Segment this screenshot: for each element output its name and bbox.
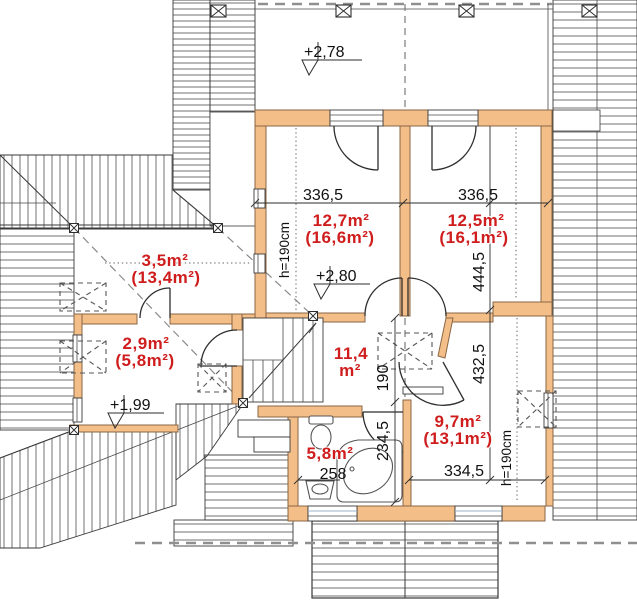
- chimney-icon: [336, 5, 351, 17]
- sink-icon: [306, 481, 334, 499]
- wardrobe-outline: [378, 333, 432, 369]
- wall-chamfer: [438, 318, 453, 358]
- post-node-icon: [239, 399, 248, 408]
- dim-bath-depth: 234,5: [375, 421, 392, 461]
- dim-bath-width: 258: [320, 466, 347, 483]
- area-bedroom-right-total: (16,1m²): [439, 228, 508, 247]
- chimney-icon: [211, 5, 226, 17]
- area-storage-upper-total: (13,4m²): [131, 268, 200, 287]
- window-left-wall-2: [254, 254, 265, 273]
- chimney-icon: [459, 5, 474, 17]
- area-storage-lower-total: (5,8m²): [115, 351, 174, 370]
- balcony-door-right: [432, 126, 476, 170]
- dim-bedroom-right-width: 336,5: [458, 187, 498, 204]
- height-note-right: h=190cm: [499, 430, 514, 486]
- level-storage: +1,99: [110, 397, 151, 414]
- window-room-right: [455, 506, 502, 521]
- floor-plan-drawing: 336,5 336,5 444,5 432,5 234,5 190 258 33…: [0, 0, 637, 600]
- post-node-icon: [70, 426, 79, 435]
- storage-upper-door: [140, 288, 170, 318]
- balcony-door-left: [334, 126, 378, 170]
- window-storage-1: [73, 335, 82, 362]
- area-hall-unit: m²: [339, 361, 361, 380]
- staircase: [243, 318, 323, 402]
- level-balcony: +2,78: [304, 44, 345, 61]
- duct-block: [238, 420, 290, 452]
- area-bedroom-left-total: (16,6m²): [305, 228, 374, 247]
- bedroom-left-door: [365, 278, 402, 316]
- storage-lower-door: [201, 330, 237, 366]
- post-node-icon: [214, 224, 223, 233]
- post-node-icon: [70, 224, 79, 233]
- balcony-door-right-frame: [428, 110, 478, 126]
- dim-bedroom-right-depth: 444,5: [471, 252, 488, 292]
- dim-room-right-depth: 432,5: [471, 344, 488, 384]
- roof-window-icon: [198, 364, 226, 392]
- post-node-icon: [309, 312, 318, 321]
- bedroom-right-door: [408, 278, 446, 316]
- level-bedroom: +2,80: [316, 268, 357, 285]
- chimney-icon: [582, 5, 597, 17]
- dim-bedroom-left-width: 336,5: [303, 187, 343, 204]
- height-note-left: h=190cm: [277, 222, 292, 278]
- window-left-wall-1: [254, 189, 265, 208]
- area-bathroom: 5,8m²: [307, 444, 354, 463]
- dim-room-right-width: 334,5: [444, 463, 484, 480]
- window-storage-2: [73, 398, 82, 422]
- window-bath: [308, 506, 357, 521]
- balcony-door-left-frame: [330, 110, 383, 126]
- floor-plan: 336,5 336,5 444,5 432,5 234,5 190 258 33…: [0, 0, 637, 600]
- dim-door: 190: [375, 365, 392, 392]
- area-room-right-total: (13,1m²): [423, 429, 492, 448]
